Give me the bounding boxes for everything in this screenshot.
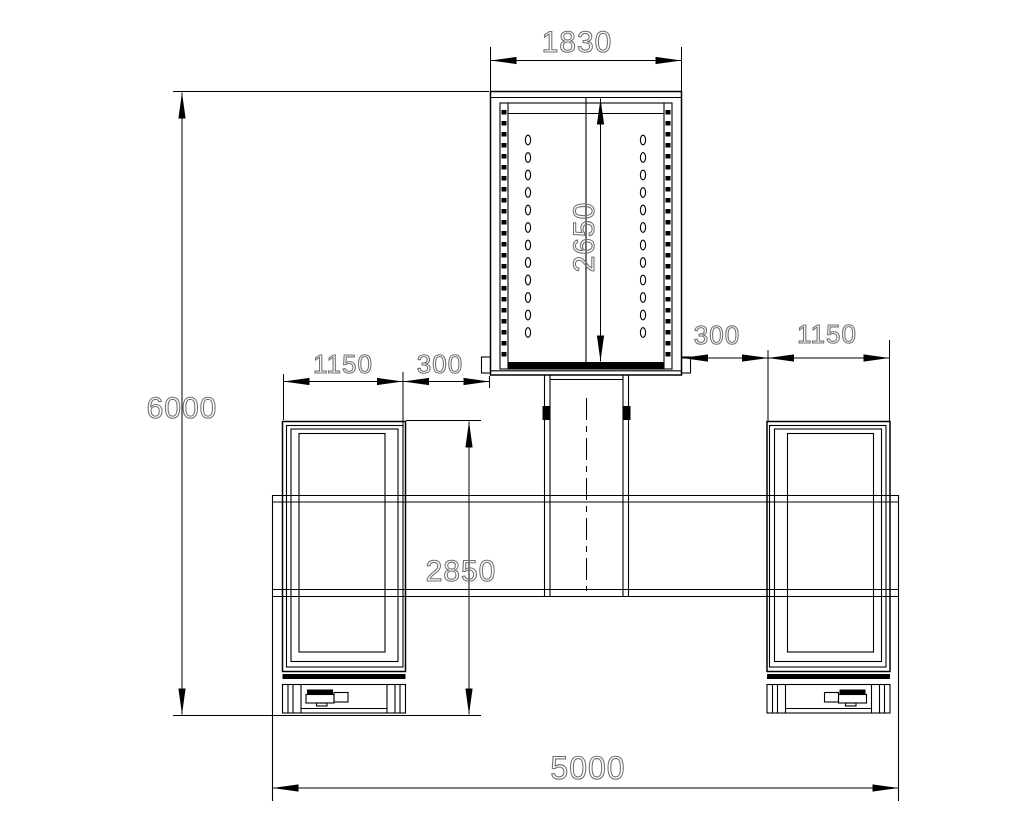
right-gearbox: [825, 693, 839, 703]
mast-weld-mark-left: [543, 406, 551, 420]
hole-column-left: [525, 135, 530, 337]
mast-stem: [543, 375, 631, 596]
left-motor-foot: [317, 703, 328, 706]
mast-weld-mark-right: [623, 406, 631, 420]
dim-post-height: 2850: [406, 421, 496, 715]
dim-top-width: 1830: [491, 26, 682, 94]
dim-right-gap: 300: [682, 320, 768, 358]
drawing-canvas: 1830 6000 2650 1150 300 300 1150 28: [0, 0, 1011, 822]
dim-label-carriage-height: 2650: [568, 202, 601, 273]
left-motor-body: [306, 695, 334, 704]
dim-label-overall-width: 5000: [550, 750, 625, 786]
dim-label-post-height: 2850: [426, 555, 497, 588]
dim-overall-width: 5000: [273, 750, 899, 788]
dim-left-post-width: 1150: [284, 349, 404, 429]
dim-label-top-width: 1830: [542, 26, 613, 59]
dim-label-left-post-width: 1150: [313, 349, 373, 379]
dim-label-left-gap: 300: [417, 349, 463, 379]
dim-label-overall-height: 6000: [147, 392, 218, 425]
dim-label-right-post-width: 1150: [797, 319, 857, 349]
dim-label-right-gap: 300: [694, 320, 740, 350]
right-motor-cap: [840, 690, 866, 695]
right-post-frame: [767, 422, 890, 672]
right-travel-drive: [767, 674, 890, 713]
corner-tab-right: [682, 357, 691, 373]
right-motor-foot: [846, 703, 857, 706]
right-motor-body: [839, 695, 867, 704]
corner-tab-left: [482, 357, 491, 373]
left-base-band: [283, 674, 406, 679]
left-travel-drive: [283, 674, 406, 713]
dim-left-gap: 300: [403, 349, 490, 388]
dim-carriage-height: 2650: [568, 99, 601, 362]
left-motor-cap: [307, 690, 333, 695]
right-base-band: [767, 674, 890, 679]
left-gearbox: [334, 693, 348, 703]
left-post-frame: [283, 422, 406, 672]
dim-overall-height: 6000: [147, 92, 489, 716]
hole-column-right: [640, 135, 645, 337]
drawing-page: 1830 6000 2650 1150 300 300 1150 28: [0, 0, 1011, 822]
carriage-bottom-band: [508, 362, 664, 369]
dim-right-post-width: 1150: [768, 319, 890, 422]
